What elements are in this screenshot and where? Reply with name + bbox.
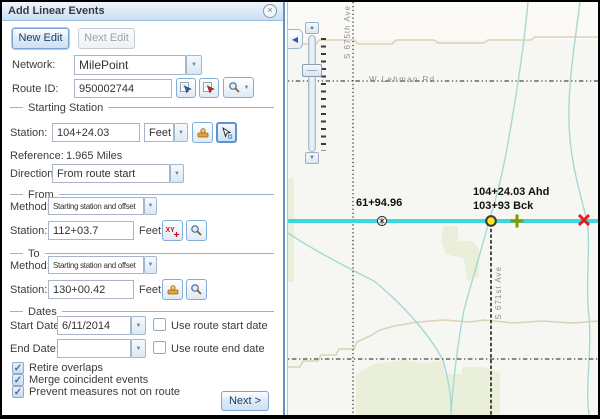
use-route-start-date-label: Use route start date bbox=[171, 320, 268, 332]
to-station-locate-button[interactable] bbox=[162, 279, 183, 300]
select-route-on-map-button[interactable] bbox=[176, 78, 196, 98]
measure-label-back: 103+93 Bck bbox=[473, 200, 533, 212]
use-route-end-date-label: Use route end date bbox=[171, 343, 265, 355]
end-date-dropdown-button[interactable]: ▼ bbox=[131, 339, 146, 358]
land-band bbox=[288, 2, 598, 40]
start-date-input[interactable]: 6/11/2014 bbox=[57, 316, 131, 335]
to-legend-text: To bbox=[28, 248, 40, 260]
route-id-label: Route ID: bbox=[12, 83, 58, 95]
reference-point-marker bbox=[377, 216, 386, 225]
to-method-dropdown-button[interactable]: ▼ bbox=[144, 256, 157, 274]
reference-value: 1.965 Miles bbox=[66, 150, 122, 162]
down-arrow-icon: ▼ bbox=[309, 155, 315, 161]
zoom-slider-handle[interactable] bbox=[302, 64, 322, 77]
starting-station-legend-text: Starting Station bbox=[28, 102, 103, 114]
to-point-marker bbox=[511, 215, 524, 228]
xy-coordinates-icon: XY bbox=[165, 224, 180, 238]
zoom-slider-track[interactable] bbox=[308, 35, 316, 152]
panel-title: Add Linear Events bbox=[8, 5, 263, 17]
milepost-icon bbox=[166, 283, 180, 297]
route-id-input[interactable]: 950002744 bbox=[74, 79, 172, 98]
pick-station-on-map-button[interactable] bbox=[216, 122, 237, 143]
select-point-cursor-icon bbox=[220, 126, 234, 140]
merge-coincident-events-checkbox[interactable]: ✓ bbox=[12, 374, 24, 386]
next-edit-button[interactable]: Next Edit bbox=[78, 28, 135, 49]
stream-right bbox=[569, 2, 590, 415]
from-station-input[interactable]: 112+03.7 bbox=[48, 221, 134, 240]
road-label-w-lehman-rd: W Lehman Rd bbox=[369, 75, 436, 84]
panel-collapse-button[interactable]: ◀ bbox=[288, 29, 303, 49]
search-icon bbox=[190, 283, 203, 296]
up-arrow-icon: ▲ bbox=[309, 25, 315, 31]
zoom-slider-ticks bbox=[321, 38, 326, 151]
prevent-measures-label: Prevent measures not on route bbox=[29, 386, 180, 398]
map-pointer-blue-icon bbox=[179, 81, 193, 95]
search-icon bbox=[190, 224, 203, 237]
collapse-arrow-icon: ◀ bbox=[292, 35, 298, 44]
from-xy-button[interactable]: XY bbox=[162, 220, 183, 241]
direction-label: Direction: bbox=[10, 168, 56, 180]
green-area-left bbox=[288, 178, 294, 282]
next-button[interactable]: Next > bbox=[221, 391, 269, 411]
starting-station-legend: Starting Station bbox=[10, 101, 274, 114]
merge-coincident-events-label: Merge coincident events bbox=[29, 374, 148, 386]
start-date-label: Start Date: bbox=[10, 320, 63, 332]
zoom-out-button[interactable]: ▼ bbox=[305, 152, 319, 164]
from-station-label: Station: bbox=[10, 225, 47, 237]
prevent-measures-checkbox[interactable]: ✓ bbox=[12, 386, 24, 398]
network-select[interactable]: MilePoint bbox=[74, 55, 186, 75]
chevron-down-icon: ▼ bbox=[244, 85, 250, 91]
green-area-bottom bbox=[356, 360, 500, 415]
measure-label-left: 61+94.96 bbox=[356, 197, 402, 209]
use-route-start-date-checkbox[interactable] bbox=[153, 318, 166, 331]
from-units-label: Feet bbox=[139, 225, 161, 237]
direction-select[interactable]: From route start bbox=[52, 164, 170, 183]
station-point-marker bbox=[486, 216, 496, 226]
new-edit-button[interactable]: New Edit bbox=[12, 28, 69, 49]
to-method-label: Method: bbox=[10, 260, 50, 272]
app-window: Add Linear Events × New Edit Next Edit N… bbox=[0, 0, 600, 419]
starting-station-input[interactable]: 104+24.03 bbox=[52, 123, 140, 142]
search-icon bbox=[228, 81, 241, 94]
map-canvas bbox=[288, 2, 598, 415]
measure-label-ahead: 104+24.03 Ahd bbox=[473, 186, 549, 198]
route-search-dropdown-button[interactable]: ▼ bbox=[223, 77, 254, 98]
road-label-s675th-ave: S 675th Ave bbox=[343, 5, 352, 59]
direction-dropdown-button[interactable]: ▼ bbox=[170, 164, 184, 183]
to-method-select[interactable]: Starting station and offset bbox=[48, 256, 144, 274]
from-method-select[interactable]: Starting station and offset bbox=[48, 197, 144, 215]
milepost-icon bbox=[196, 126, 210, 140]
close-icon[interactable]: × bbox=[263, 4, 277, 18]
network-label: Network: bbox=[12, 59, 55, 71]
starting-units-dropdown-button[interactable]: ▼ bbox=[174, 123, 188, 142]
retire-overlaps-checkbox[interactable]: ✓ bbox=[12, 362, 24, 374]
map-pointer-red-icon bbox=[202, 81, 216, 95]
from-method-label: Method: bbox=[10, 201, 50, 213]
from-search-button[interactable] bbox=[186, 220, 207, 241]
network-dropdown-button[interactable]: ▼ bbox=[186, 55, 202, 75]
end-date-label: End Date: bbox=[10, 343, 59, 355]
to-search-button[interactable] bbox=[186, 279, 207, 300]
add-linear-events-panel: Add Linear Events × New Edit Next Edit N… bbox=[2, 2, 285, 415]
svg-text:XY: XY bbox=[166, 227, 176, 234]
to-station-input[interactable]: 130+00.42 bbox=[48, 280, 134, 299]
dates-legend-text: Dates bbox=[28, 306, 57, 318]
panel-titlebar: Add Linear Events × bbox=[2, 2, 283, 21]
to-units-label: Feet bbox=[139, 284, 161, 296]
map-viewport[interactable]: S 675th Ave W Lehman Rd S 671st Ave 61+9… bbox=[287, 2, 598, 415]
clear-route-selection-button[interactable] bbox=[199, 78, 219, 98]
use-route-end-date-checkbox[interactable] bbox=[153, 341, 166, 354]
station-locate-button[interactable] bbox=[192, 122, 213, 143]
green-area-mid bbox=[441, 226, 479, 281]
start-date-dropdown-button[interactable]: ▼ bbox=[131, 316, 146, 335]
retire-overlaps-label: Retire overlaps bbox=[29, 362, 103, 374]
zoom-in-button[interactable]: ▲ bbox=[305, 22, 319, 34]
starting-station-label: Station: bbox=[10, 127, 47, 139]
to-station-label: Station: bbox=[10, 284, 47, 296]
from-method-dropdown-button[interactable]: ▼ bbox=[144, 197, 157, 215]
starting-units-select[interactable]: Feet bbox=[144, 123, 174, 142]
reference-label: Reference: bbox=[10, 150, 64, 162]
end-date-input[interactable] bbox=[57, 339, 131, 358]
road-label-s671st-ave: S 671st Ave bbox=[494, 266, 503, 320]
